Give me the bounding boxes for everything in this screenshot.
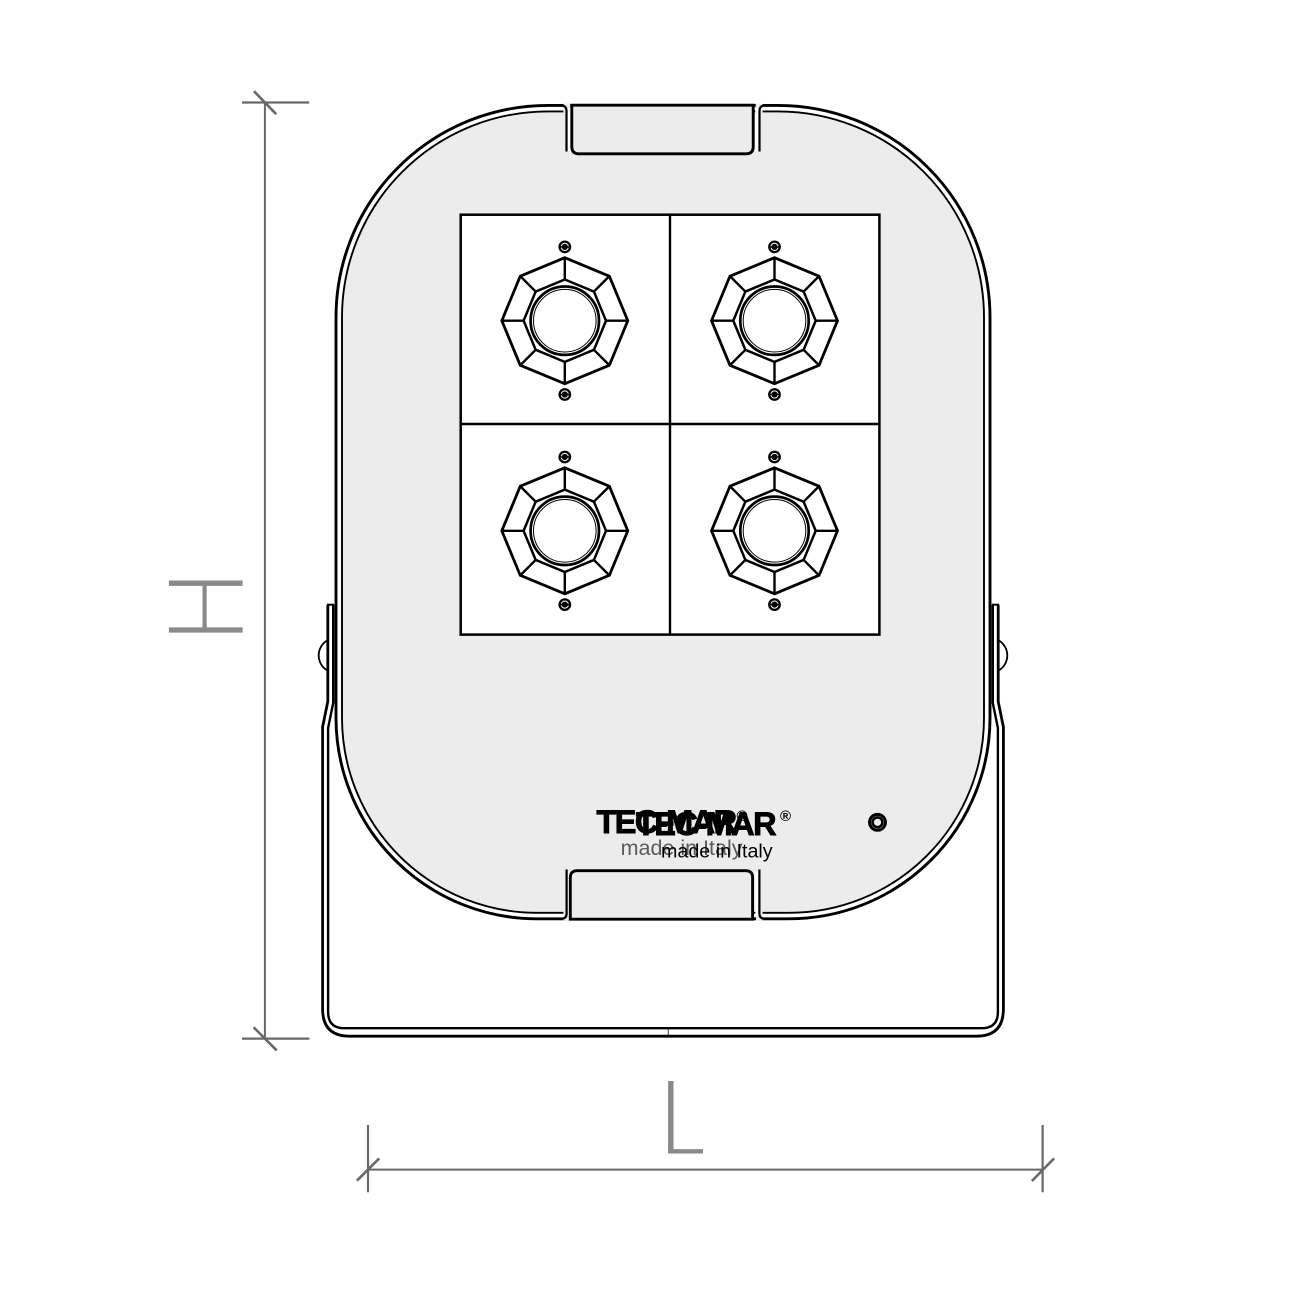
svg-text:®: ®: [780, 808, 791, 825]
svg-text:made in Italy: made in Italy: [661, 841, 773, 863]
